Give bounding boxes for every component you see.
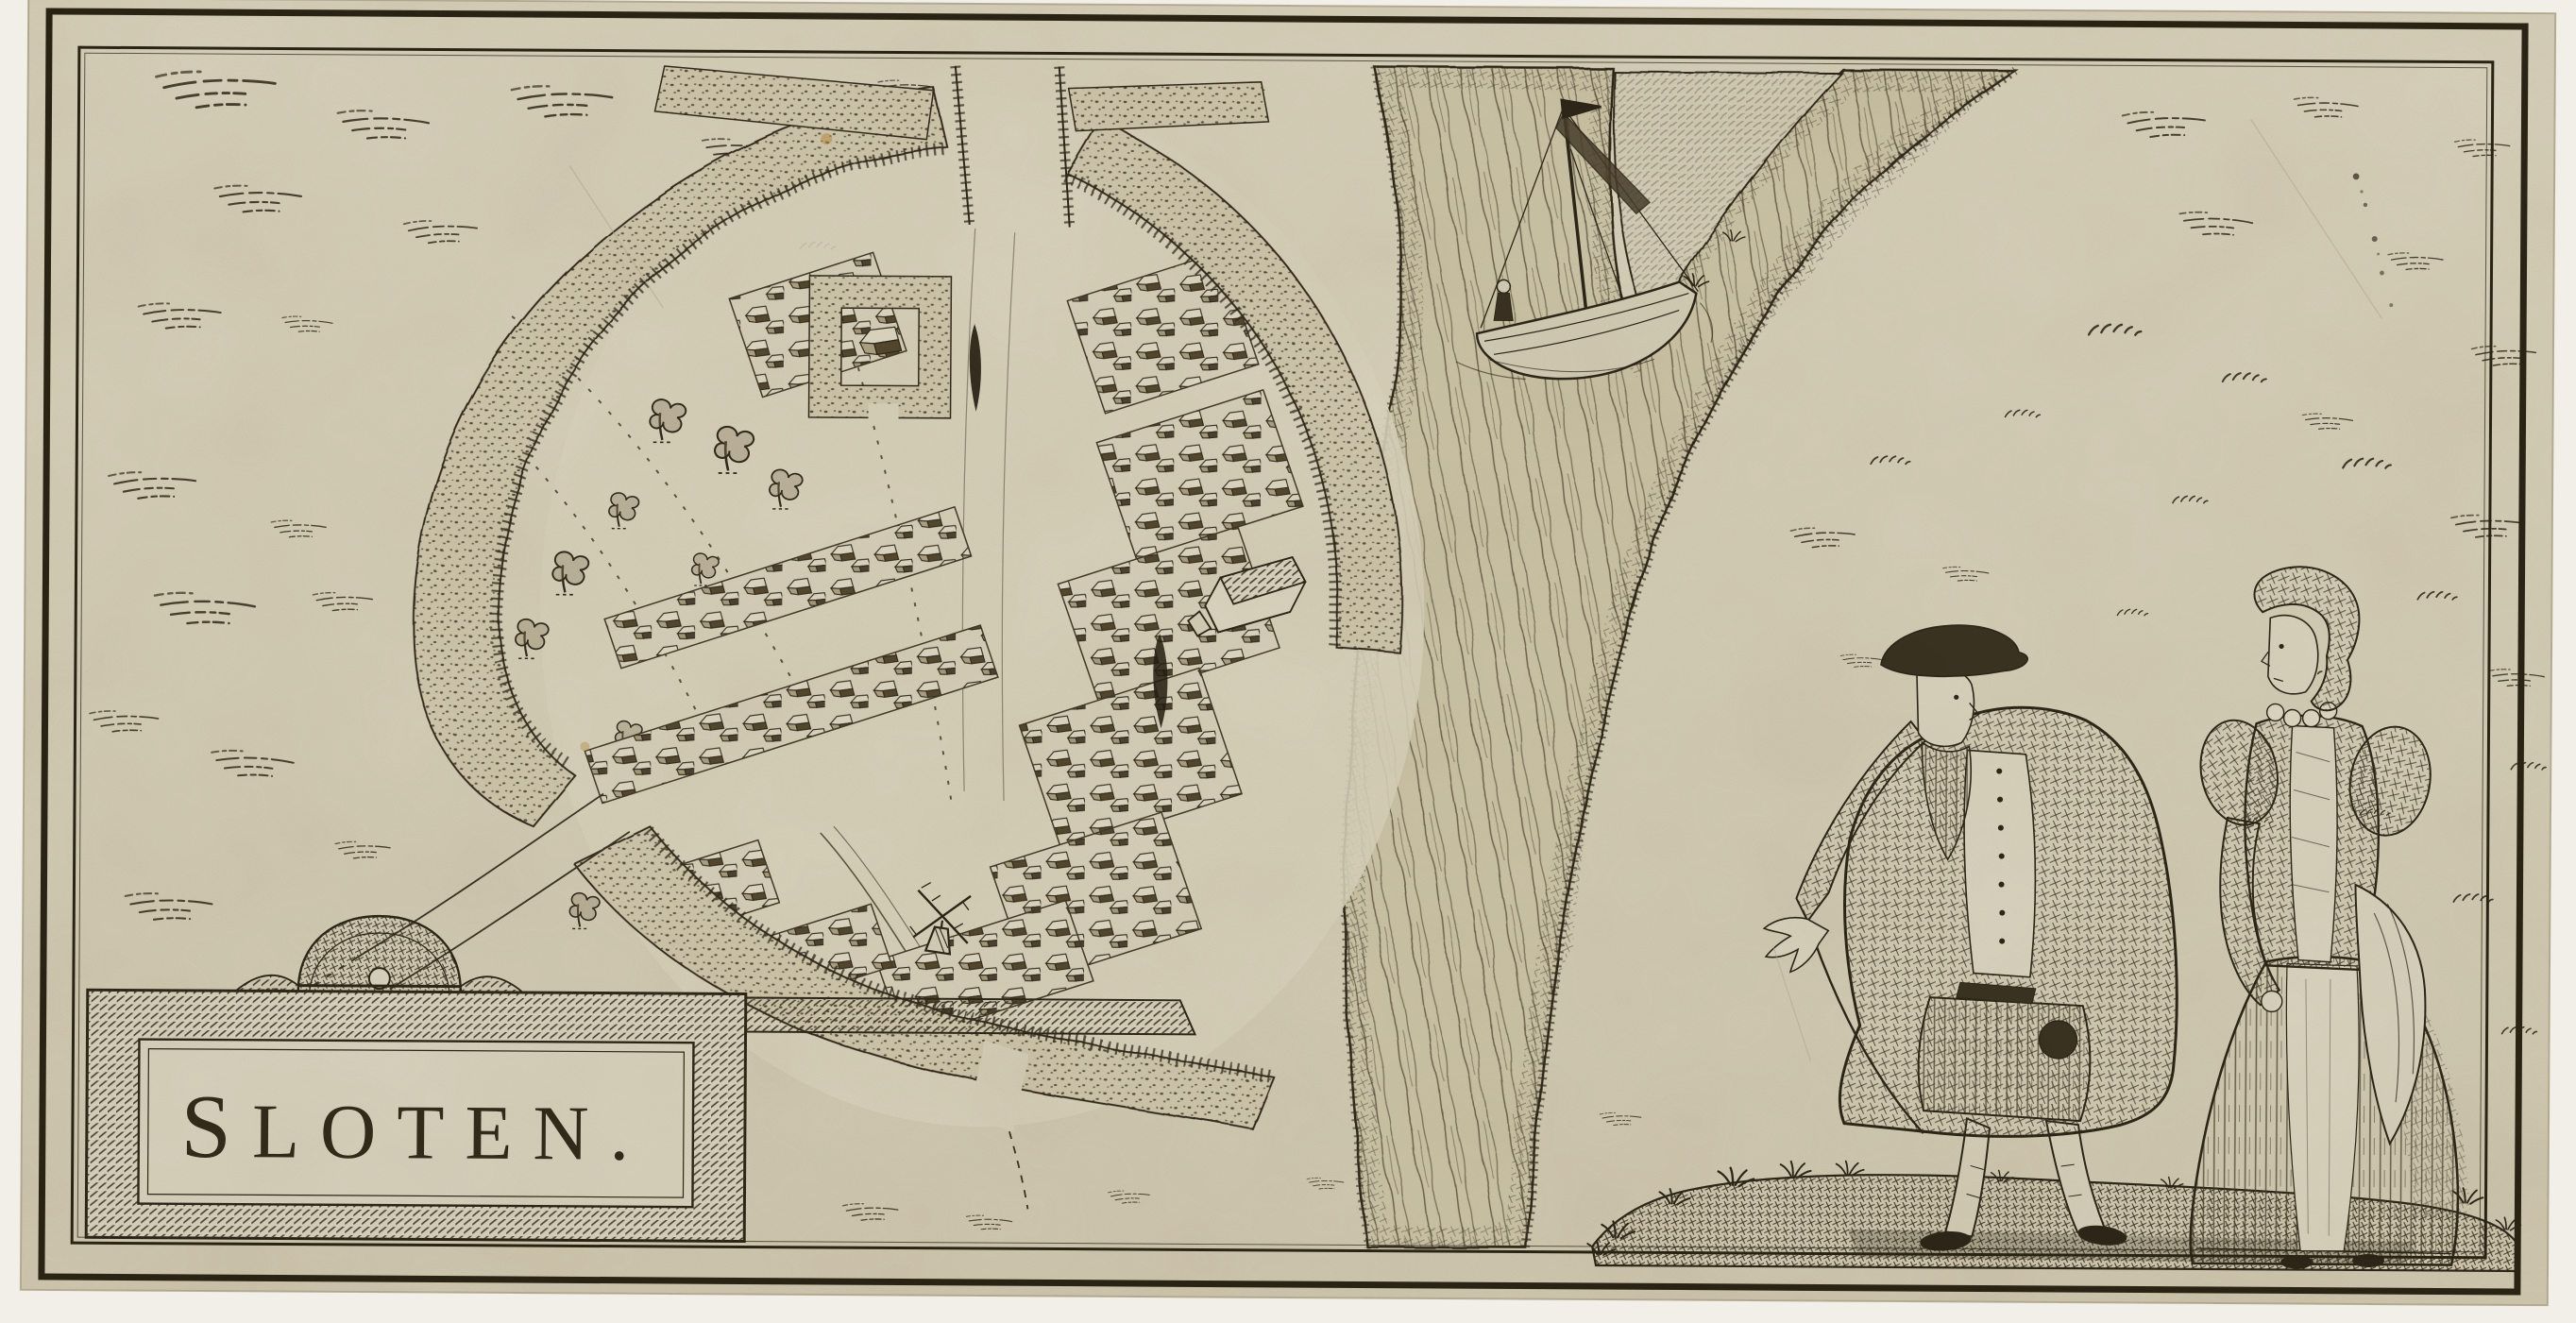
etching-canvas: SLOTEN.: [0, 0, 2576, 1323]
paper-grain-coarse: [21, 0, 2555, 1305]
plate: SLOTEN.: [21, 0, 2555, 1305]
engraved-map-sloten: SLOTEN.: [0, 0, 2576, 1323]
